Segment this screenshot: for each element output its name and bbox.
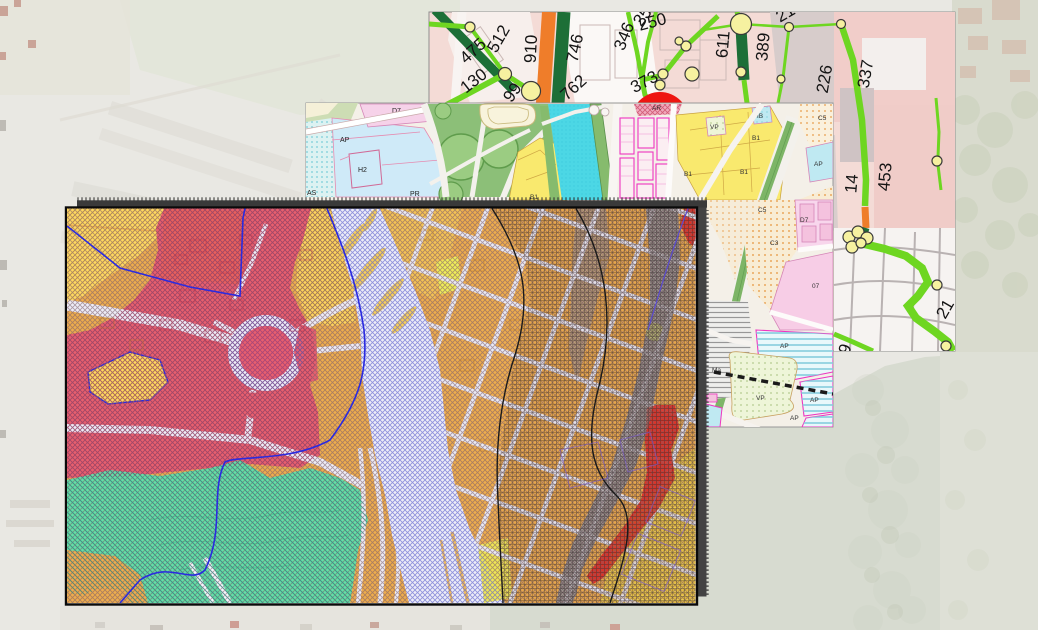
- svg-text:453: 453: [874, 162, 895, 192]
- svg-text:AP: AP: [790, 415, 799, 422]
- svg-text:AP: AP: [814, 161, 823, 168]
- svg-text:D7: D7: [800, 217, 809, 224]
- svg-text:AP: AP: [340, 137, 350, 144]
- svg-text:AS: AS: [307, 190, 317, 197]
- svg-text:H2: H2: [358, 167, 367, 174]
- svg-text:611: 611: [712, 30, 733, 59]
- svg-text:AR: AR: [652, 105, 661, 112]
- svg-text:C5: C5: [818, 115, 827, 122]
- svg-text:07: 07: [812, 283, 820, 290]
- svg-text:C3: C3: [770, 240, 779, 247]
- svg-text:B1: B1: [740, 169, 748, 176]
- svg-text:C5: C5: [758, 207, 767, 214]
- svg-text:14: 14: [841, 173, 862, 194]
- svg-text:910: 910: [521, 34, 541, 63]
- svg-text:PR: PR: [410, 191, 420, 198]
- svg-text:B1: B1: [752, 135, 760, 142]
- svg-text:VP: VP: [710, 124, 719, 131]
- svg-text:VP: VP: [756, 395, 765, 402]
- svg-text:AP: AP: [810, 397, 819, 404]
- svg-text:B1: B1: [684, 171, 692, 178]
- svg-text:AP: AP: [780, 343, 789, 350]
- svg-text:389: 389: [752, 32, 773, 62]
